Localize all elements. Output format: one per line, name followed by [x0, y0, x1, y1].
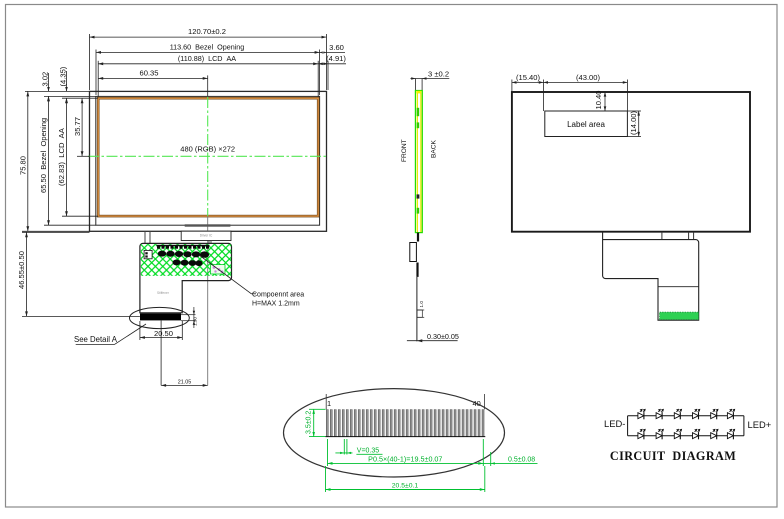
svg-text:3 ±0.2: 3 ±0.2	[428, 70, 449, 79]
svg-text:1.0: 1.0	[419, 301, 424, 308]
svg-text:0.30±0.05: 0.30±0.05	[427, 332, 459, 341]
svg-text:H=MAX 1.2mm: H=MAX 1.2mm	[252, 301, 300, 308]
svg-text:See Detail A: See Detail A	[74, 335, 118, 344]
svg-text:20.5±0.1: 20.5±0.1	[392, 482, 419, 489]
svg-text:(14.00): (14.00)	[629, 110, 638, 135]
svg-text:BACK: BACK	[430, 139, 437, 158]
svg-text:75.80: 75.80	[18, 156, 27, 175]
svg-text:35.77: 35.77	[73, 117, 82, 136]
svg-text:1.50: 1.50	[193, 317, 198, 326]
svg-text:(4.91): (4.91)	[326, 54, 346, 63]
svg-text:(15.40): (15.40)	[516, 73, 541, 82]
svg-text:46.55±0.50: 46.55±0.50	[17, 251, 26, 289]
svg-text:0.5±0.08: 0.5±0.08	[508, 457, 535, 464]
svg-text:Driver IC: Driver IC	[200, 234, 213, 238]
svg-text:65.50 Bezel Opening: 65.50 Bezel Opening	[39, 118, 48, 193]
svg-text:Compoennt area: Compoennt area	[252, 292, 304, 299]
svg-text:P0.5×(40-1)=19.5±0.07: P0.5×(40-1)=19.5±0.07	[368, 454, 442, 463]
svg-text:LED+: LED+	[748, 419, 772, 430]
svg-text:480 (RGB) ×272: 480 (RGB) ×272	[180, 145, 235, 154]
svg-text:Label area: Label area	[567, 120, 605, 129]
svg-text:20.50: 20.50	[154, 329, 173, 338]
svg-text:LED-: LED-	[604, 418, 625, 429]
svg-text:10.40: 10.40	[594, 90, 603, 109]
svg-text:21.05: 21.05	[178, 379, 192, 385]
svg-text:Stiffener: Stiffener	[157, 291, 170, 295]
svg-text:3.60: 3.60	[329, 43, 344, 52]
svg-text:120.70±0.2: 120.70±0.2	[188, 27, 226, 36]
svg-text:1: 1	[327, 399, 331, 408]
svg-text:(43.00): (43.00)	[576, 73, 601, 82]
svg-text:CIRCUIT DIAGRAM: CIRCUIT DIAGRAM	[610, 449, 736, 463]
svg-text:(110.88) LCD AA: (110.88) LCD AA	[178, 54, 236, 63]
svg-text:113.60 Bezel Opening: 113.60 Bezel Opening	[170, 43, 245, 52]
svg-text:(4.35): (4.35)	[59, 66, 68, 86]
svg-text:(62.83) LCD AA: (62.83) LCD AA	[57, 127, 66, 186]
svg-text:3.5±0.2: 3.5±0.2	[306, 411, 313, 434]
svg-text:40: 40	[473, 399, 481, 408]
svg-text:FRONT: FRONT	[401, 139, 408, 162]
svg-text:60.35: 60.35	[139, 69, 158, 78]
svg-text:3.02: 3.02	[40, 72, 49, 87]
